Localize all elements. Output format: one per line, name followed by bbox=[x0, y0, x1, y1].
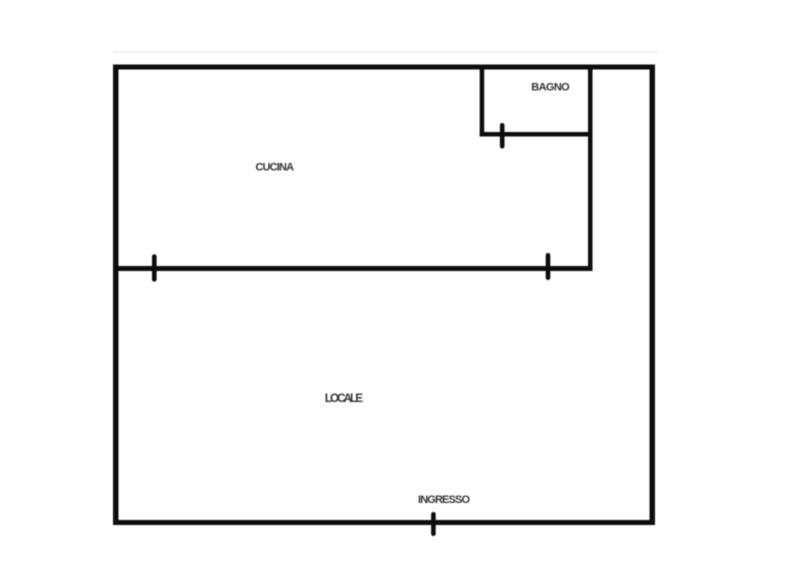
svg-text:INGRESSO: INGRESSO bbox=[418, 494, 470, 506]
svg-text:BAGNO: BAGNO bbox=[531, 82, 570, 94]
svg-text:CUCINA: CUCINA bbox=[255, 161, 294, 173]
svg-text:LOCALE: LOCALE bbox=[325, 392, 363, 405]
